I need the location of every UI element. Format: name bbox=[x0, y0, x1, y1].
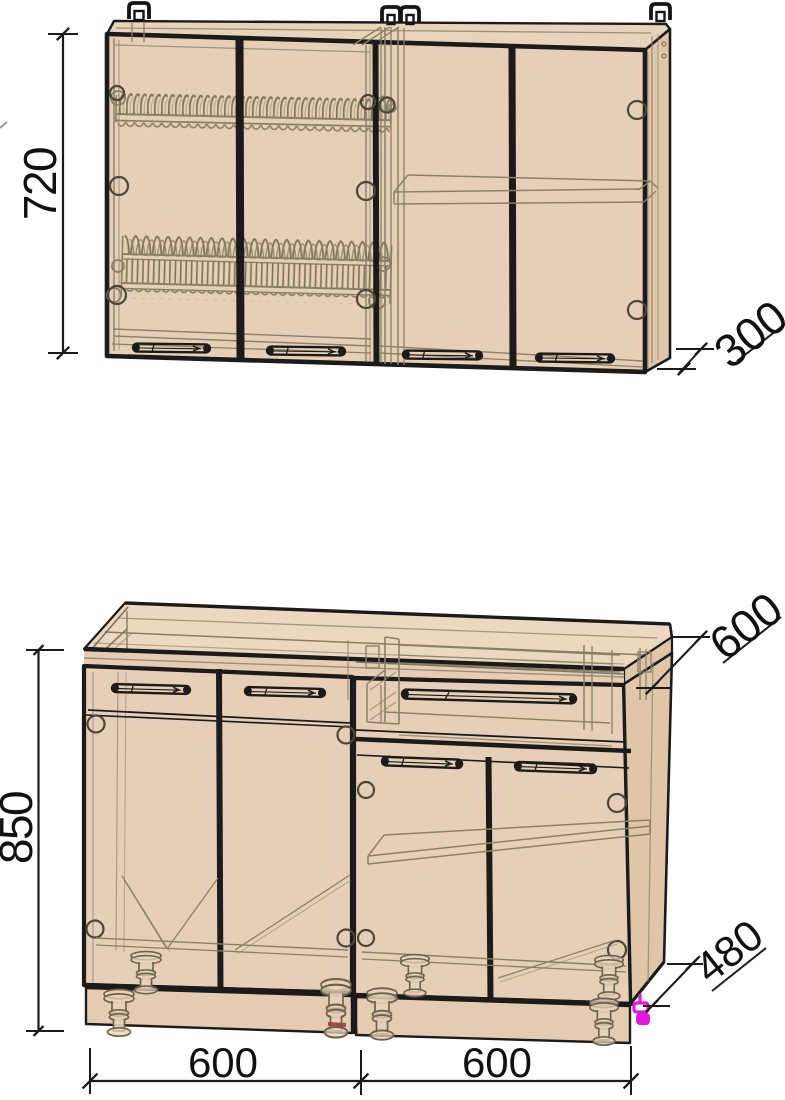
svg-text:850: 850 bbox=[0, 792, 42, 864]
svg-text:600: 600 bbox=[462, 1039, 532, 1086]
svg-text:720: 720 bbox=[14, 148, 66, 220]
svg-text:600: 600 bbox=[188, 1039, 258, 1086]
